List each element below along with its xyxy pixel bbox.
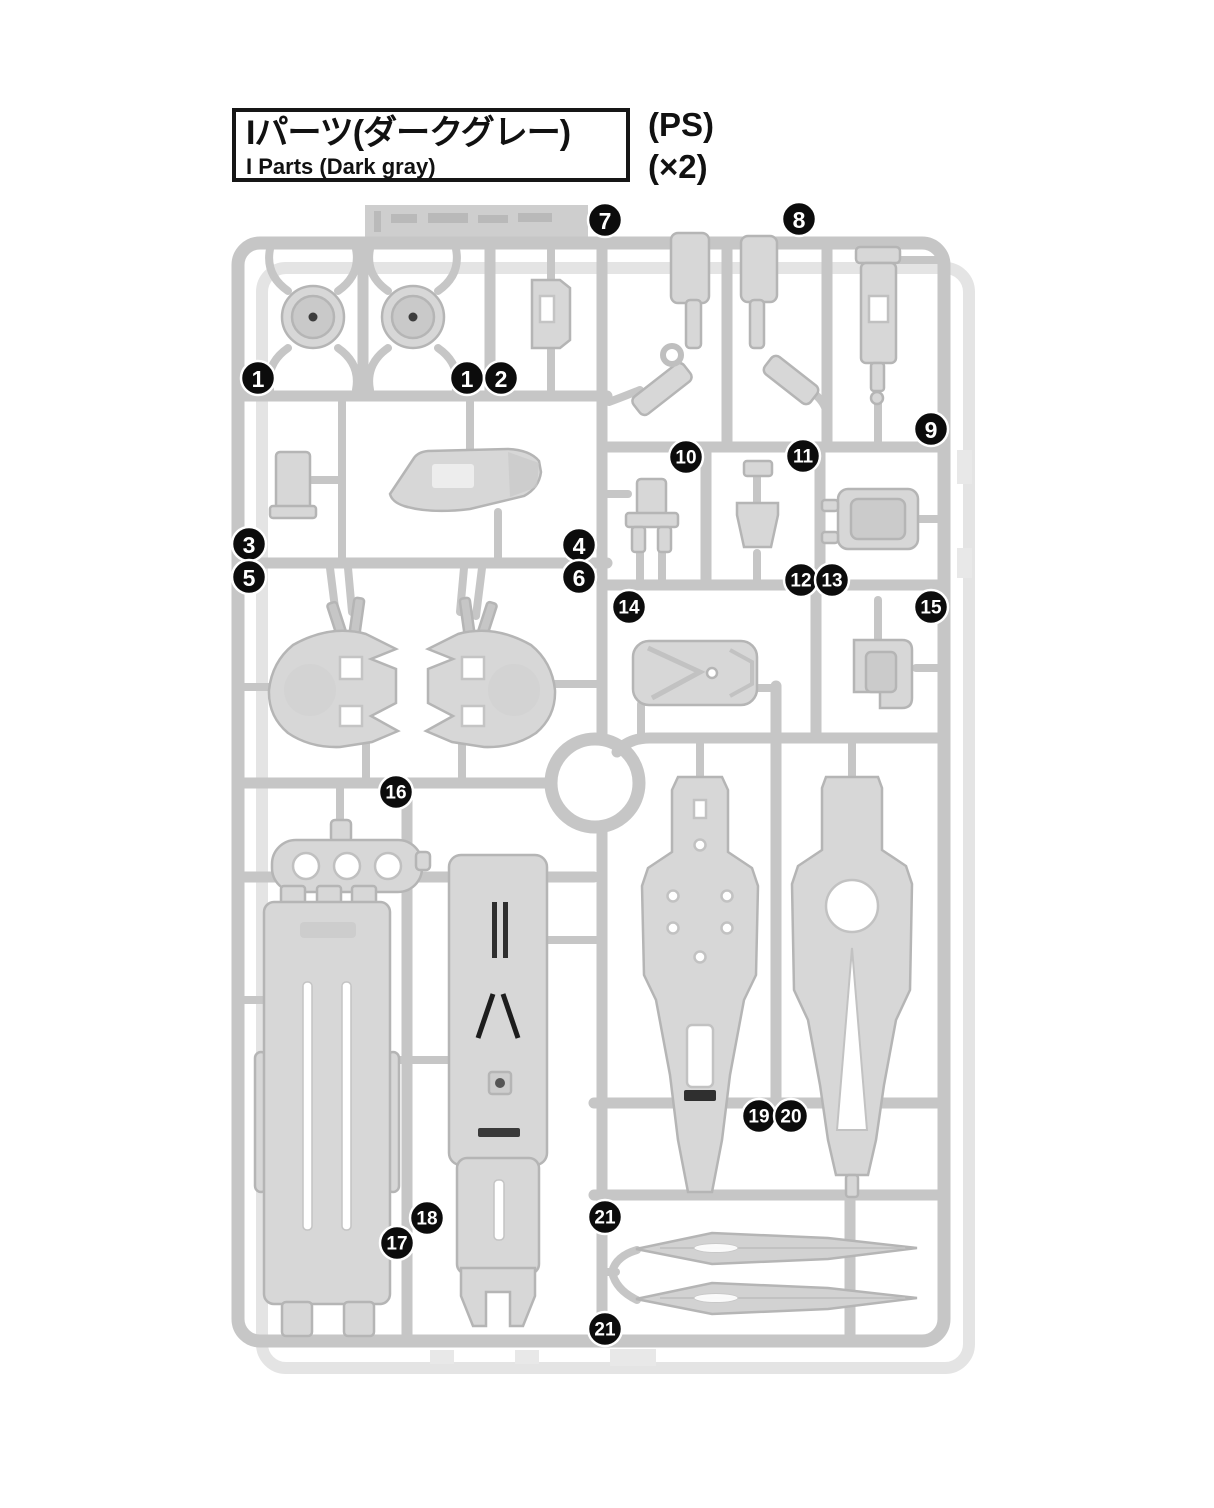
part-tall-18 xyxy=(449,855,547,1326)
part-blade-21a xyxy=(636,1233,917,1264)
part-box-12-13 xyxy=(822,489,918,549)
part-bracket-15 xyxy=(854,640,912,708)
part-bracket-2 xyxy=(532,280,570,348)
part-callout: 9 xyxy=(914,412,948,446)
svg-text:17: 17 xyxy=(386,1234,407,1255)
part-callout: 21 xyxy=(588,1312,622,1346)
svg-text:20: 20 xyxy=(780,1107,801,1128)
svg-text:21: 21 xyxy=(594,1320,616,1341)
part-dome-2 xyxy=(382,286,444,348)
part-callout: 5 xyxy=(232,560,266,594)
part-callout: 1 xyxy=(450,361,484,395)
part-callout: 14 xyxy=(612,590,646,624)
part-callout: 8 xyxy=(782,202,816,236)
svg-text:2: 2 xyxy=(495,366,508,392)
part-callout: 1 xyxy=(241,361,275,395)
svg-text:1: 1 xyxy=(461,366,474,392)
part-callout: 4 xyxy=(562,528,596,562)
svg-text:5: 5 xyxy=(243,565,256,591)
svg-text:8: 8 xyxy=(793,207,806,233)
part-callout: 10 xyxy=(669,440,703,474)
svg-text:19: 19 xyxy=(748,1107,769,1128)
svg-text:12: 12 xyxy=(790,571,811,592)
svg-text:10: 10 xyxy=(675,448,696,469)
svg-text:14: 14 xyxy=(618,598,640,619)
svg-text:7: 7 xyxy=(599,208,612,234)
part-chest-4 xyxy=(390,449,541,511)
svg-text:1: 1 xyxy=(252,366,265,392)
svg-text:13: 13 xyxy=(821,571,842,592)
part-callout: 2 xyxy=(484,361,518,395)
instruction-page: Iパーツ(ダークグレー) I Parts (Dark gray) (PS) (×… xyxy=(0,0,1214,1508)
part-bracket-11 xyxy=(737,461,778,547)
part-tall-17 xyxy=(255,886,399,1336)
part-callout: 11 xyxy=(786,439,820,473)
svg-text:16: 16 xyxy=(385,783,406,804)
part-leg-19 xyxy=(642,777,758,1192)
sprue-ring xyxy=(551,739,639,827)
part-claw-right-16 xyxy=(426,597,555,747)
part-callout: 17 xyxy=(380,1226,414,1260)
svg-text:21: 21 xyxy=(594,1208,616,1229)
svg-text:4: 4 xyxy=(573,533,586,559)
part-callout: 3 xyxy=(232,527,266,561)
part-callout: 16 xyxy=(379,775,413,809)
part-arm-8 xyxy=(741,236,821,407)
part-claw-left-16 xyxy=(269,597,398,747)
part-callout: 18 xyxy=(410,1201,444,1235)
part-seat-10 xyxy=(626,479,678,552)
part-callout: 21 xyxy=(588,1200,622,1234)
runner-diagram: 112789354610111213141516181719202121 xyxy=(0,0,1214,1508)
svg-text:15: 15 xyxy=(920,598,942,619)
part-arm-7 xyxy=(630,233,709,417)
part-callout: 12 xyxy=(784,563,818,597)
part-box-3 xyxy=(270,452,316,518)
part-callout: 19 xyxy=(742,1099,776,1133)
part-dome-1 xyxy=(282,286,344,348)
svg-text:3: 3 xyxy=(243,532,256,558)
part-leg-20 xyxy=(792,777,912,1197)
part-blade-21b xyxy=(636,1283,917,1314)
part-assembly-9 xyxy=(856,247,900,404)
part-callout: 6 xyxy=(562,560,596,594)
svg-text:6: 6 xyxy=(573,565,586,591)
svg-text:18: 18 xyxy=(416,1209,437,1230)
runner-tag-bar xyxy=(365,205,588,238)
part-pod-14 xyxy=(633,641,757,705)
svg-text:11: 11 xyxy=(793,447,814,468)
svg-text:9: 9 xyxy=(925,417,938,443)
part-callout: 20 xyxy=(774,1099,808,1133)
part-callout: 15 xyxy=(914,590,948,624)
part-callout: 13 xyxy=(815,563,849,597)
part-callout: 7 xyxy=(588,203,622,237)
